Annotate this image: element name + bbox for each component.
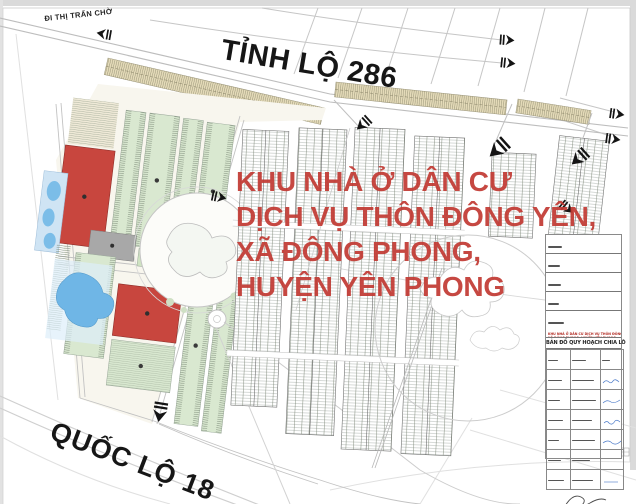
road-direction-arrow — [96, 28, 112, 41]
road-direction-arrow — [500, 57, 516, 69]
signature-scribble — [561, 491, 607, 504]
roundabout — [208, 310, 226, 328]
overlay-line: XÃ ĐÔNG PHONG, — [236, 234, 596, 269]
title-block-org-section: UBND HUYỆN YÊN PHONG ........., ngày ...… — [546, 273, 621, 292]
project-name-overlay: KHU NHÀ Ở DÂN CƯ DỊCH VỤ THÔN ĐÔNG YÊN, … — [236, 164, 596, 304]
drawing-title: BẢN ĐỒ QUY HOẠCH CHIA LÔ — [546, 338, 621, 349]
signature-scribble — [602, 399, 622, 405]
signature-scribble — [602, 479, 622, 485]
overlay-line: DỊCH VỤ THÔN ĐÔNG YÊN, — [236, 199, 596, 234]
approval-signature-area — [546, 490, 621, 504]
road-direction-arrow — [609, 108, 625, 120]
title-block-org-section: PHÒNG KINH TẾ VÀ HẠ TẦNG HUYỆN YÊN PHONG… — [546, 254, 621, 273]
overlay-line: HUYỆN YÊN PHONG — [236, 269, 596, 304]
signature-table — [546, 349, 624, 490]
title-block-org-section: SỞ XÂY DỰNG BẮC NINH ........., ngày ...… — [546, 235, 621, 254]
signature-scribble — [602, 419, 622, 425]
project-name-section: KHU NHÀ Ở DÂN CƯ DỊCH VỤ THÔN ĐÔNG YÊN X… — [546, 311, 621, 338]
title-block-org-section: UBND XÃ ĐÔNG PHONG ........., ngày .....… — [546, 292, 621, 311]
signature-scribble — [602, 439, 622, 445]
planning-map-screenshot: ĐI THỊ TRẤN CHỜ TỈNH LỘ 286 QUỐC LỘ 18 K… — [0, 0, 636, 504]
overlay-line: KHU NHÀ Ở DÂN CƯ — [236, 164, 596, 199]
signature-scribble — [602, 379, 622, 385]
title-block: SỞ XÂY DỰNG BẮC NINH ........., ngày ...… — [545, 234, 622, 459]
